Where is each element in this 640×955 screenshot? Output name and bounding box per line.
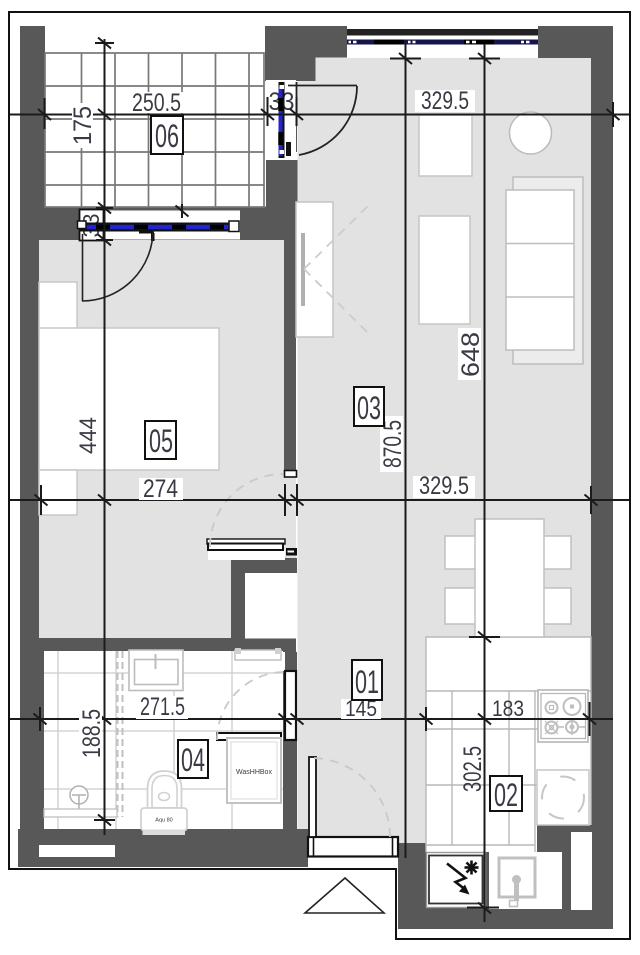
svg-text:329.5: 329.5	[419, 472, 469, 500]
svg-text:870.5: 870.5	[379, 420, 407, 468]
svg-text:648: 648	[457, 332, 485, 377]
svg-text:188.5: 188.5	[78, 709, 106, 758]
svg-text:271.5: 271.5	[140, 693, 185, 721]
svg-text:444: 444	[75, 417, 102, 454]
svg-text:06: 06	[155, 118, 179, 154]
svg-text:04: 04	[181, 742, 205, 778]
svg-text:250.5: 250.5	[132, 89, 181, 117]
svg-text:274: 274	[143, 475, 178, 503]
svg-text:01: 01	[355, 664, 379, 700]
svg-text:02: 02	[494, 777, 518, 813]
svg-text:05: 05	[149, 423, 173, 459]
svg-text:329.5: 329.5	[421, 87, 469, 115]
svg-text:Aqu 80: Aqu 80	[155, 818, 172, 824]
svg-text:03: 03	[357, 390, 381, 426]
svg-text:175: 175	[69, 106, 97, 145]
svg-text:183: 183	[492, 696, 524, 721]
svg-text:302.5: 302.5	[459, 746, 487, 792]
svg-text:WasHHBox: WasHHBox	[236, 769, 272, 776]
